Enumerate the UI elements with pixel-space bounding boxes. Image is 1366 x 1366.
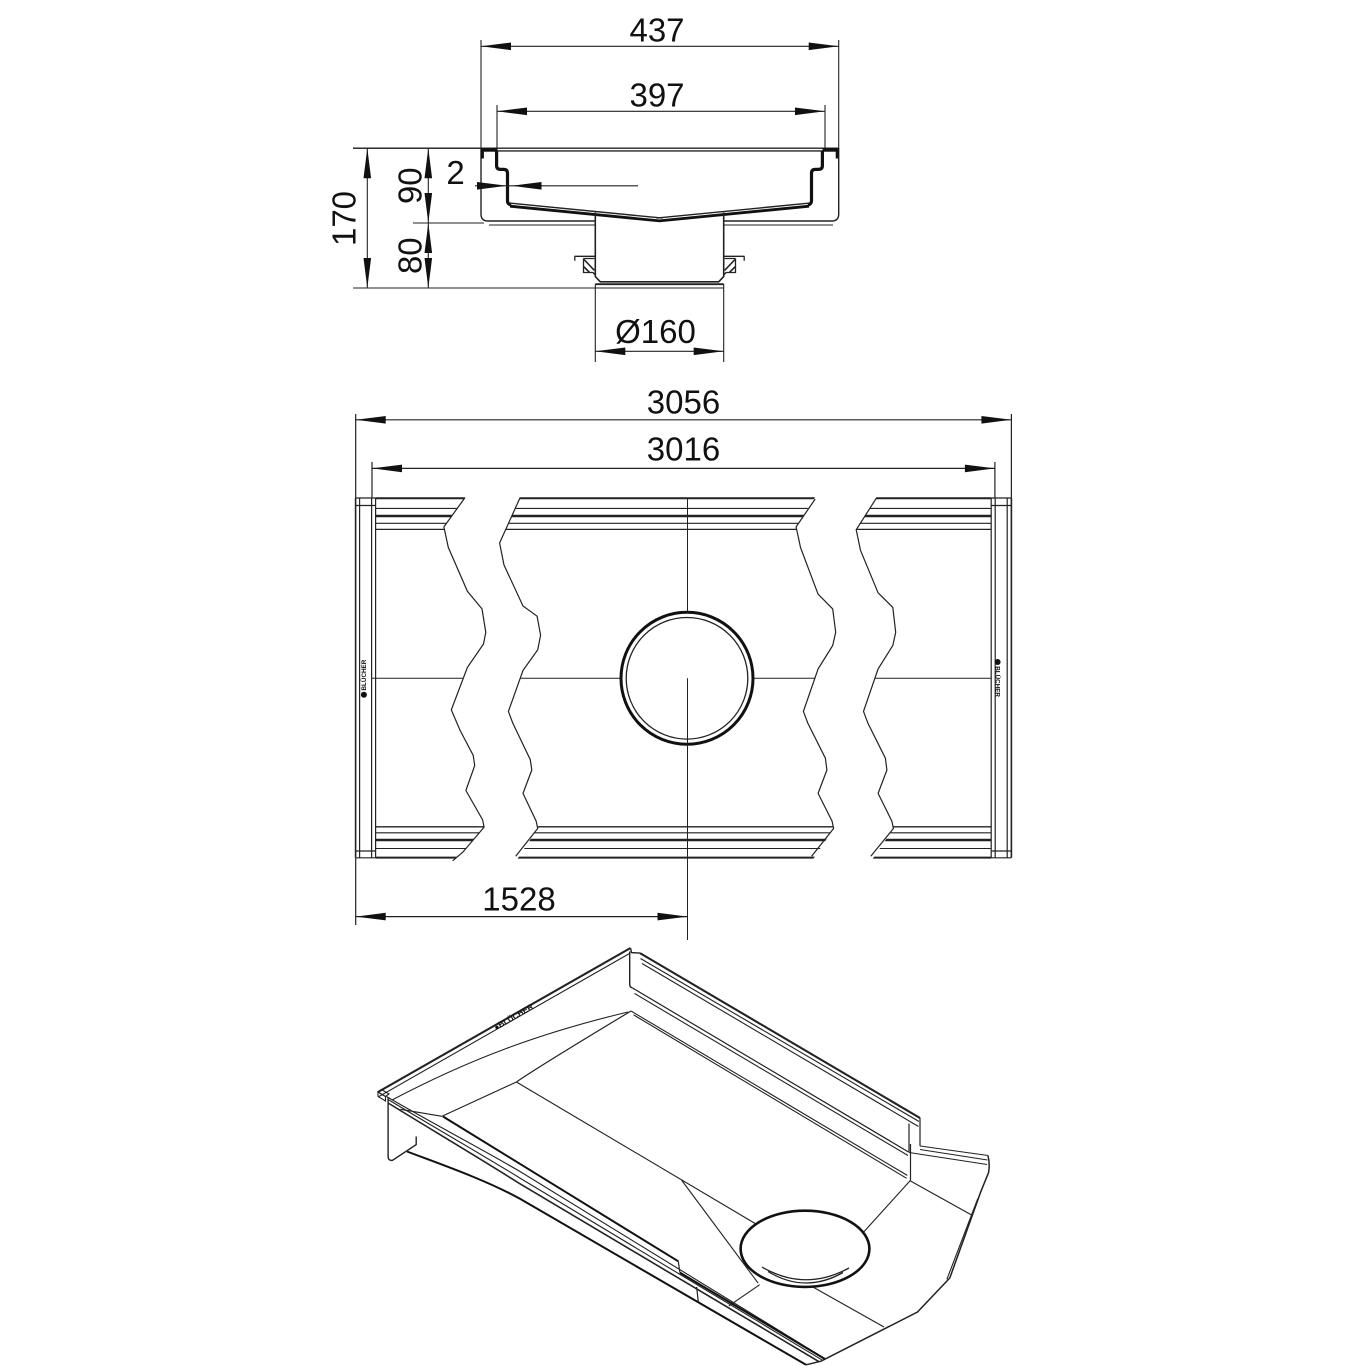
svg-text:397: 397 [629, 77, 684, 114]
svg-text:90: 90 [392, 167, 429, 204]
svg-text:Ø160: Ø160 [615, 313, 696, 350]
svg-text:437: 437 [629, 12, 684, 49]
svg-text:3056: 3056 [647, 384, 720, 421]
svg-text:170: 170 [326, 191, 363, 246]
svg-text:2: 2 [446, 154, 464, 191]
svg-text:80: 80 [392, 237, 429, 274]
svg-text:BLÜCHER: BLÜCHER [359, 659, 368, 690]
svg-text:1528: 1528 [482, 881, 555, 918]
svg-text:BLÜCHER: BLÜCHER [993, 666, 1002, 697]
svg-text:3016: 3016 [647, 431, 720, 468]
